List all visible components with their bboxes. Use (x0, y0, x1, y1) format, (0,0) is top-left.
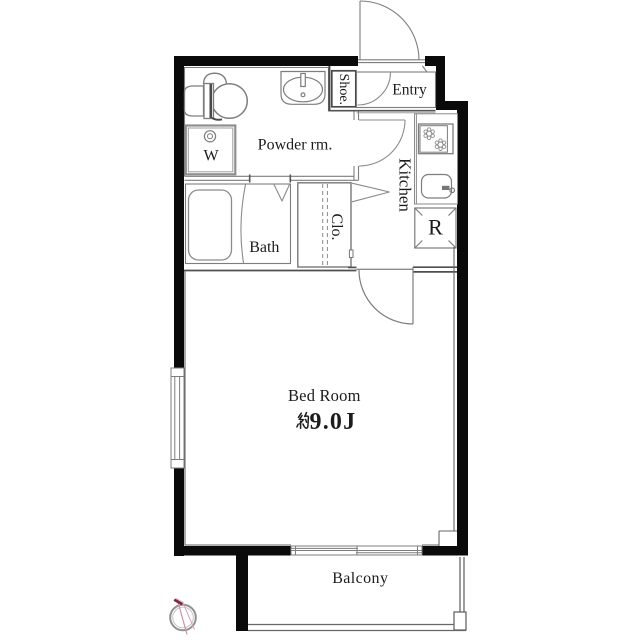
svg-text:R: R (428, 215, 443, 240)
svg-text:Clo.: Clo. (328, 213, 345, 240)
svg-text:W: W (203, 148, 219, 165)
svg-text:Entry: Entry (392, 81, 427, 98)
svg-text:Bed Room: Bed Room (288, 386, 361, 405)
svg-text:Bath: Bath (249, 239, 279, 256)
svg-text:9.0J: 9.0J (310, 409, 357, 435)
svg-text:Balcony: Balcony (332, 570, 388, 587)
svg-text:Kitchen: Kitchen (396, 158, 415, 212)
svg-text:Shoe.: Shoe. (336, 74, 351, 106)
svg-text:Powder rm.: Powder rm. (258, 137, 333, 154)
